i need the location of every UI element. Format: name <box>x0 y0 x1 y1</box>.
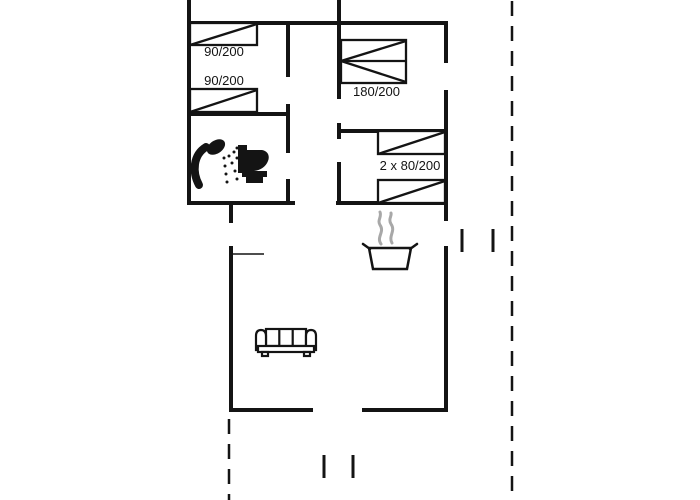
bed-size-label-single-bottom: 90/200 <box>190 74 258 88</box>
toilet-icon <box>238 145 269 183</box>
single-bed-bottom <box>190 89 257 112</box>
floor-plan: 90/200 90/200 180/200 2 x 80/200 <box>0 0 700 500</box>
bed-size-label-single-top: 90/200 <box>190 45 258 59</box>
sofa-icon <box>256 329 316 356</box>
walls <box>187 0 448 412</box>
shower-icon <box>195 136 246 185</box>
bed-size-label-double: 180/200 <box>339 85 414 99</box>
bunk-bed-top <box>378 131 445 154</box>
single-bed-top <box>190 23 257 45</box>
steam-icon <box>379 212 393 244</box>
double-bed <box>341 40 406 83</box>
bunk-bed-bottom <box>378 180 445 203</box>
bed-size-label-bunks: 2 x 80/200 <box>368 159 452 173</box>
floor-plan-drawing <box>0 0 700 500</box>
cooking-pot-icon <box>363 212 417 269</box>
